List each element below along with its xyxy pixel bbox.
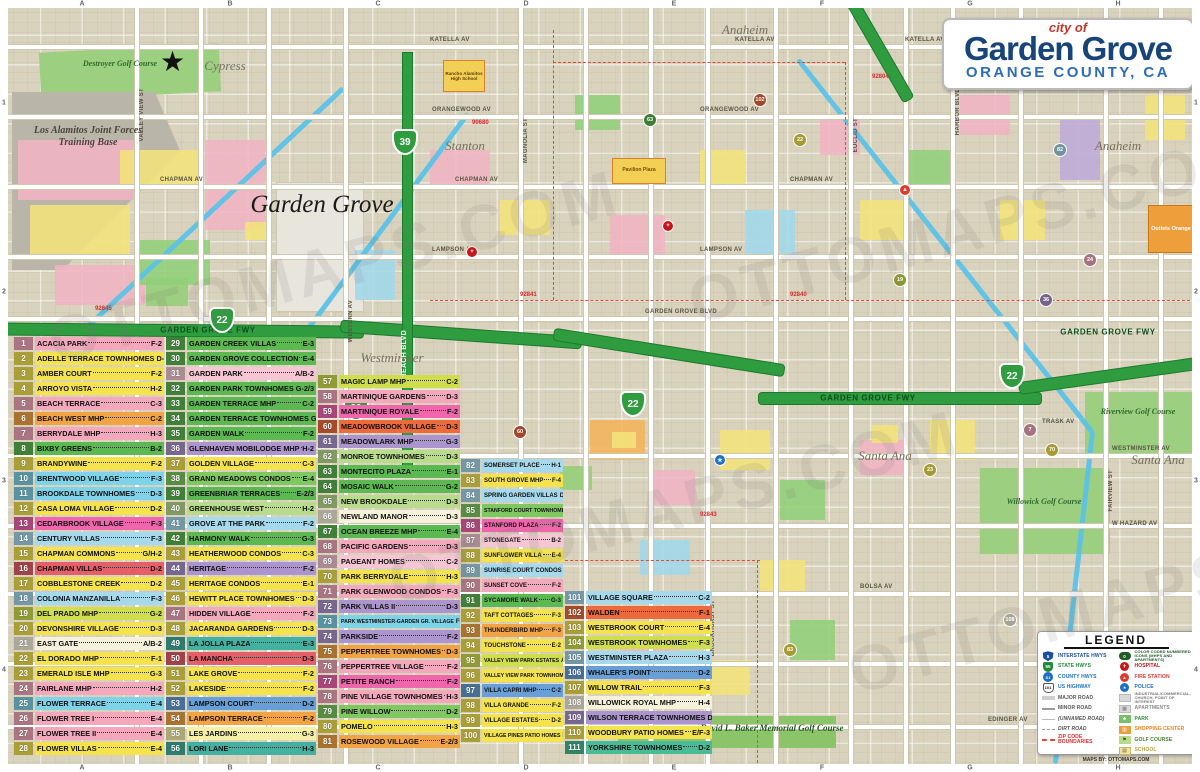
listing-name: PETITE RANCH (341, 677, 395, 686)
listing-name: GARDEN PARK TOWNHOMES (189, 384, 294, 393)
listing-row: 33GARDEN TERRACE MHPC-2 (166, 397, 316, 410)
grid-letter: A (79, 765, 84, 772)
listing-number: 86 (461, 519, 480, 532)
legend-item: 101US HIGHWAY (1041, 683, 1115, 694)
listing-row: 101VILLAGE SQUAREC-2 (565, 591, 712, 604)
listing-name: WESTMINSTER PLAZA (588, 653, 668, 662)
route-number: 22 (627, 399, 638, 410)
listing-row: 5BEACH TERRACEC-3 (14, 397, 164, 410)
grid-number: 1 (1194, 99, 1198, 106)
listing-number: 72 (318, 600, 337, 613)
listing-name: VALLEY VIEW PARK TOWNHOMES (484, 673, 563, 679)
listing-number: 31 (166, 367, 185, 380)
listing-name-bar: VILLAGE SQUAREC-2 (586, 591, 712, 604)
listing-number: 43 (166, 547, 185, 560)
listing-leader-dots (415, 440, 445, 441)
legend-item-label: MINOR ROAD (1058, 706, 1092, 711)
listing-name: VILLAGE SQUARE (588, 593, 653, 602)
listing-grid-ref: F-4 (552, 478, 561, 484)
street-label: WESTMINSTER AV (1112, 446, 1170, 452)
legend-item-label: GOLF COURSE (1135, 738, 1173, 743)
listing-name-bar: TOUCHSTONEE-2 (482, 639, 563, 652)
listing-leader-dots (652, 671, 697, 672)
listing-row: 27FLOWER TREE IIE-4 (14, 727, 164, 740)
listing-name-bar: ROSEWOOD VILLAGEE-2/3 (339, 735, 460, 748)
police-icon: ★ (715, 455, 725, 465)
listing-row: 91SYCAMORE WALKG-3 (461, 594, 563, 607)
industrial-swatch (1118, 694, 1132, 702)
us-shield: 101 (1041, 683, 1055, 693)
listing-leader-dots (683, 746, 697, 747)
listing-name: SOMERSET PLACE (484, 463, 540, 469)
listing-name: GARDEN WALK (189, 429, 244, 438)
legend-item-label: POLICE (1135, 685, 1154, 690)
listing-number: 20 (14, 622, 33, 635)
street-label: CHAPMAN AV (790, 177, 833, 183)
listing-name-bar: ADELLE TERRACE TOWNHOMESD-2 (35, 352, 164, 365)
listing-row: 77PETITE RANCHF-2 (318, 675, 460, 688)
listing-leader-dots (539, 719, 550, 720)
zip-boundary (1042, 739, 1055, 741)
grid-letter: A (79, 1, 84, 8)
listing-number: 67 (318, 525, 337, 538)
listing-name-bar: STONEGATEB-2 (482, 534, 563, 547)
listing-leader-dots (643, 686, 698, 687)
zip-boundary-line (553, 30, 554, 300)
listing-number: 53 (166, 697, 185, 710)
legend-title: LEGEND (1064, 634, 1169, 649)
listing-number: 109 (565, 711, 584, 724)
listing-leader-dots (544, 629, 551, 630)
listing-name-bar: PETITE RANCHF-2 (339, 675, 460, 688)
listing-name-bar: BEACH TERRACEC-3 (35, 397, 164, 410)
listing-leader-dots (79, 642, 142, 643)
listing-grid-ref: B-2 (551, 538, 561, 544)
listing-name: PEPPERTREE VILLAGE (341, 662, 424, 671)
listing-grid-ref: D-3 (707, 713, 712, 722)
listing-leader-dots (541, 464, 551, 465)
listing-name-bar: VILLAGE ESTATESD-2 (482, 714, 563, 727)
listing-name: WESTBROOK TOWNHOMES (588, 638, 687, 647)
listing-row: 20DEVONSHIRE VILLAGED-3 (14, 622, 164, 635)
listing-grid-ref: D-3 (560, 493, 563, 499)
zip-boundary-line (845, 62, 846, 300)
poi-outlet: Outlets Orange (1148, 205, 1194, 253)
listing-grid-ref: D-3 (446, 452, 458, 461)
listing-row: 108WILLOWICK ROYAL MHPH-4 (565, 696, 712, 709)
grid-letter: H (1115, 765, 1120, 772)
listing-leader-dots (396, 605, 445, 606)
listing-name-bar: LES JARDINSG-3 (187, 727, 316, 740)
listing-number: 64 (318, 480, 337, 493)
listing-row: 57MAGIC LAMP MHPC-2 (318, 375, 460, 388)
grid-number: 3 (2, 477, 6, 484)
listing-leader-dots (120, 477, 150, 478)
listing-number: 17 (14, 577, 33, 590)
legend-item: ▤SCHOOL (1118, 746, 1192, 757)
listing-name: SUNSET COVE (484, 583, 527, 589)
listing-name: PAGEANT HOMES (341, 557, 405, 566)
listing-name-bar: COLONIA MANZANILLAF-3 (35, 592, 164, 605)
street-label: KATELLA AV (430, 37, 470, 43)
listing-grid-ref: H-3 (698, 653, 710, 662)
grid-number: 2 (2, 288, 6, 295)
listing-grid-ref: G-2 (150, 609, 162, 618)
place-label-westminster: Westminster (360, 350, 423, 366)
listing-grid-ref: D-3 (446, 512, 458, 521)
listing-row: 61MEADOWLARK MHPG-3 (318, 435, 460, 448)
listing-row: 83SOUTH GROVE MHPF-4 (461, 474, 563, 487)
listing-grid-ref: F-2 (303, 684, 314, 693)
listing-row: 24FAIRLANE MHPH-2 (14, 682, 164, 695)
listing-number: 11 (14, 487, 33, 500)
street-label: GARDEN GROVE BLVD (645, 309, 717, 315)
listing-name-bar: WHALER'S POINTD-2 (586, 666, 712, 679)
listing-name: PINE VILLAGE TOWNHOMES (341, 692, 443, 701)
listing-name-bar: EL DORADO MHPF-1 (35, 652, 164, 665)
listing-name-bar: SOUTH GROVE MHPF-4 (482, 474, 563, 487)
listing-name: HIDDEN VILLAGE (189, 609, 251, 618)
legend-item: 55STATE HWYS (1041, 662, 1115, 673)
listing-row: 41GROVE AT THE PARKF-2 (166, 517, 316, 530)
golf-swatch: ⚑ (1118, 736, 1132, 744)
listing-name: GLENHAVEN MOBILODGE MHP (189, 444, 300, 453)
listing-row: 68PACIFIC GARDENSD-3 (318, 540, 460, 553)
listing-name: CENTURY VILLAS (37, 534, 100, 543)
listing-leader-dots (101, 402, 149, 403)
listing-row: 26FLOWER TREE IE-4 (14, 712, 164, 725)
us-shield: 101 (1043, 683, 1054, 693)
listing-leader-dots (539, 599, 550, 600)
listing-name: FLOWER VILLAS (37, 744, 97, 753)
listing-grid-ref: A/B-2 (295, 369, 314, 378)
listing-name: THUNDERBIRD MHP (484, 628, 543, 634)
interstate-shield: 5 (1043, 651, 1054, 661)
listing-name-bar: PARK GLENWOOD CONDOSF-3 (339, 585, 460, 598)
place-label-anaheim: Anaheim (722, 22, 768, 38)
map-badge-36: 36 (1040, 294, 1052, 306)
listing-grid-ref: C-2 (698, 593, 710, 602)
listing-name-bar: MEADOWLARK MHPG-3 (339, 435, 460, 448)
listing-grid-ref: C-2 (446, 377, 458, 386)
map-badge-19: 19 (894, 274, 906, 286)
listing-name: ROSEWOOD VILLAGE (341, 737, 419, 746)
listing-name-bar: OCEAN BREEZE MHPE-4 (339, 525, 460, 538)
legend-item-label: ZIP CODE BOUNDARIES (1058, 735, 1115, 746)
listing-name: VILLAGE PINES PATIO HOMES (484, 733, 560, 739)
listing-leader-dots (427, 395, 446, 396)
listing-grid-ref: G-3 (302, 729, 314, 738)
listing-number: 10 (14, 472, 33, 485)
listing-name-bar: LAMPSON TERRACEF-2 (187, 712, 316, 725)
listing-name: CHAPMAN VILLAS (37, 564, 102, 573)
listing-leader-dots (88, 462, 150, 463)
listing-name-bar: WILLOW TRAILF-3 (586, 681, 712, 694)
listing-leader-dots (121, 582, 149, 583)
listing-name: HEWITT PLACE TOWNHOMES (189, 594, 295, 603)
listing-number: 55 (166, 727, 185, 740)
grid-letter: D (523, 765, 528, 772)
listing-number: 65 (318, 495, 337, 508)
listing-name: VALLEY VIEW PARK ESTATES (484, 658, 559, 664)
grid-letter: E (672, 765, 677, 772)
listing-leader-dots (442, 590, 446, 591)
listing-grid-ref: H-3 (302, 744, 314, 753)
listing-number: 97 (461, 684, 480, 697)
listing-name: MEADOWLARK MHP (341, 437, 414, 446)
residential-patch (860, 200, 905, 240)
listing-number: 92 (461, 609, 480, 622)
listing-number: 30 (166, 352, 185, 365)
listing-grid-ref: F-1 (151, 654, 162, 663)
listing-row: 96VALLEY VIEW PARK TOWNHOMESA-2 (461, 669, 563, 682)
listing-number: 2 (14, 352, 33, 365)
listing-grid-ref: D-3 (446, 497, 458, 506)
listing-leader-dots (93, 447, 149, 448)
listing-row: 16CHAPMAN VILLASD-2 (14, 562, 164, 575)
legend-item: MAJOR ROAD (1041, 693, 1115, 704)
street-label: MAGNOLIA ST (523, 118, 529, 163)
listing-name-bar: LAKESIDEF-2 (187, 682, 316, 695)
listing-name-bar: AMBER COURTF-2 (35, 367, 164, 380)
listing-row: 2ADELLE TERRACE TOWNHOMESD-2 (14, 352, 164, 365)
poi-school: Rancho Alamitos High School (443, 60, 485, 92)
zip-code-label: 90680 (472, 120, 489, 126)
listing-leader-dots (227, 567, 302, 568)
listing-name: LAKESIDE (189, 684, 226, 693)
listing-name-bar: LA JOLLA PLAZAE-3 (187, 637, 316, 650)
major-road (773, 0, 779, 772)
listing-grid-ref: E-4 (303, 354, 314, 363)
listing-leader-dots (101, 432, 149, 433)
grid-number: 3 (1194, 477, 1198, 484)
major-road (1041, 696, 1055, 700)
listing-number: 108 (565, 696, 584, 709)
listing-row: 72PARK VILLAS IID-3 (318, 600, 460, 613)
legend-item: +HOSPITAL (1118, 662, 1192, 673)
listing-name: YORKSHIRE TOWNHOMES (588, 743, 682, 752)
listing-grid-ref: D-3 (446, 422, 458, 431)
listing-grid-ref: F-2 (303, 609, 314, 618)
listing-grid-ref: D-3 (446, 647, 458, 656)
listing-leader-dots (437, 425, 445, 426)
listing-leader-dots (543, 554, 551, 555)
listing-grid-ref: D-2 (150, 504, 162, 513)
listing-row: 92TAFT COTTAGESF-3 (461, 609, 563, 622)
residential-patch (650, 470, 695, 505)
listing-row: 94TOUCHSTONEE-2 (461, 639, 563, 652)
listing-leader-dots (409, 515, 445, 516)
listing-leader-dots (281, 492, 295, 493)
hospital-icon: + (1120, 662, 1129, 671)
freeway-5 (827, 0, 914, 104)
dirt-road (1042, 729, 1055, 730)
grid-letter: C (375, 765, 380, 772)
listing-leader-dots (98, 747, 150, 748)
listing-row: 56LORI LANEH-3 (166, 742, 316, 755)
legend-item-label: PARK (1135, 717, 1149, 722)
listing-name-bar: COBBLESTONE CREEKD-2 (35, 577, 164, 590)
listing-row: 63MONTECITO PLAZAE-1 (318, 465, 460, 478)
listing-grid-ref: G-2 (446, 482, 458, 491)
legend-left-column: 5INTERSTATE HWYS55STATE HWYSS1COUNTY HWY… (1041, 651, 1115, 756)
listing-grid-ref: D-3 (150, 624, 162, 633)
listing-number: 101 (565, 591, 584, 604)
listing-name: VILLA CAPRI MHP (484, 688, 536, 694)
listing-row: 51LAKE GROVEF-2 (166, 667, 316, 680)
residential-patch (790, 620, 835, 660)
listing-name-bar: GARDEN PARKA/B-2 (187, 367, 316, 380)
listing-name: FLOWER TREE I (37, 714, 94, 723)
listing-grid-ref: F-2 (552, 703, 561, 709)
grid-letter: G (967, 1, 972, 8)
residential-patch (500, 200, 550, 235)
legend-item-label: (UNNAMED ROAD) (1058, 717, 1104, 722)
listing-leader-dots (101, 537, 150, 538)
street-label: WESTERN AV (348, 300, 354, 342)
listing-name-bar: GOLDEN VILLAGEC-3 (187, 457, 316, 470)
numbered-icon: 0 (1118, 652, 1132, 660)
listing-name: OCEAN BREEZE MHP (341, 527, 417, 536)
listing-grid-ref: D-3 (302, 594, 314, 603)
listing-grid-ref: F-3 (699, 683, 710, 692)
grid-letter: B (227, 1, 232, 8)
listing-name-bar: LA MANCHAD-3 (187, 652, 316, 665)
listing-number: 56 (166, 742, 185, 755)
listing-name: TAFT COTTAGES (484, 613, 533, 619)
legend-item: S1COUNTY HWYS (1041, 672, 1115, 683)
listing-leader-dots (391, 710, 445, 711)
listing-row: 35GARDEN WALKF-2 (166, 427, 316, 440)
listing-leader-dots (116, 552, 141, 553)
listing-name-bar: VALLEY VIEW PARK TOWNHOMESA-2 (482, 669, 563, 682)
listing-name-bar: HERITAGE CONDOSE-1 (187, 577, 316, 590)
listing-name-bar: GARDEN PARK TOWNHOMESG-2/3 (187, 382, 316, 395)
listing-number: 88 (461, 549, 480, 562)
listing-leader-dots (88, 342, 150, 343)
listing-number: 80 (318, 720, 337, 733)
listing-name-bar: STANFORD COURT TOWNHOMESF-2 (482, 504, 563, 517)
listing-grid-ref: D-3 (150, 489, 162, 498)
listing-leader-dots (407, 380, 445, 381)
listing-name: MONTECITO PLAZA (341, 467, 411, 476)
listing-name-bar: FAIRLANE MHPH-2 (35, 682, 164, 695)
listing-name: AMBER COURT (37, 369, 92, 378)
listing-number: 18 (14, 592, 33, 605)
listing-leader-dots (103, 567, 149, 568)
listing-row: 9BRANDYWINEF-2 (14, 457, 164, 470)
listing-grid-ref: C-2 (551, 688, 561, 694)
listing-leader-dots (252, 612, 302, 613)
listing-number: 37 (166, 457, 185, 470)
listing-leader-dots (530, 704, 551, 705)
listing-number: 34 (166, 412, 185, 425)
listing-row: 3AMBER COURTF-2 (14, 367, 164, 380)
listing-leader-dots (408, 500, 445, 501)
legend-item: ▲FIRE STATION (1118, 672, 1192, 683)
listing-number: 47 (166, 607, 185, 620)
state-shield: 55 (1041, 662, 1055, 672)
listing-grid-ref: F-3 (151, 519, 162, 528)
listing-number: 59 (318, 405, 337, 418)
listing-name: COLONIA MANZANILLA (37, 594, 120, 603)
listing-row: 15CHAPMAN COMMONSG/H-2 (14, 547, 164, 560)
legend-box: LEGEND 5INTERSTATE HWYS55STATE HWYSS1COU… (1037, 631, 1195, 755)
listing-name-bar: PARK WESTMINSTER-GARDEN GR. VILLAGEF-3 (339, 615, 460, 628)
street-label: EDINGER AV (988, 717, 1028, 723)
listing-name-bar: ARROYO VISTAH-2 (35, 382, 164, 395)
listing-row: 98VILLA GRANDEF-2 (461, 699, 563, 712)
listing-grid-ref: F-2 (303, 519, 314, 528)
legend-item: ▦APARTMENTS (1118, 704, 1192, 715)
listing-name-bar: POMELOH-3 (339, 720, 460, 733)
residential-patch (872, 425, 898, 443)
listing-name: VILLA GRANDE (484, 703, 529, 709)
listing-name: SPRING GARDEN VILLAS (484, 493, 558, 499)
listing-leader-dots (292, 477, 302, 478)
frame-top (0, 0, 1200, 8)
legend-item: 5INTERSTATE HWYS (1041, 651, 1115, 662)
listing-leader-dots (654, 596, 697, 597)
listing-grid-ref: E-4 (447, 527, 458, 536)
map-badge-63: 63 (644, 114, 656, 126)
residential-patch (575, 95, 620, 130)
listing-grid-ref: H-1 (551, 463, 561, 469)
frame-left (0, 0, 8, 772)
street-label: ORANGEWOOD AV (700, 107, 759, 113)
listing-name: PARK BERRYDALE (341, 572, 408, 581)
listing-name: WALDEN (588, 608, 620, 617)
map-badge-83: 83 (784, 644, 796, 656)
listing-leader-dots (255, 462, 301, 463)
listing-name: HERITAGE CONDOS (189, 579, 260, 588)
listing-grid-ref: H-3 (446, 572, 458, 581)
listing-name-bar: HERITAGEF-2 (187, 562, 316, 575)
listing-row: 74PARKSIDEF-2 (318, 630, 460, 643)
listing-name: GARDEN CREEK VILLAS (189, 339, 276, 348)
listing-name: LA MANCHA (189, 654, 233, 663)
listing-name-bar: SPRING GARDEN VILLASD-3 (482, 489, 563, 502)
listing-row: 22EL DORADO MHPF-1 (14, 652, 164, 665)
grid-letter: F (820, 1, 824, 8)
listing-row: 81ROSEWOOD VILLAGEE-2/3 (318, 735, 460, 748)
listing-name: STONEGATE (484, 538, 521, 544)
listing-grid-ref: B-2 (150, 444, 162, 453)
listing-name-bar: WESTBROOK COURTE-4 (586, 621, 712, 634)
listing-name-bar: SUNFLOWER VILLAE-4 (482, 549, 563, 562)
listing-row: 102WALDENF-1 (565, 606, 712, 619)
listing-number: 79 (318, 705, 337, 718)
listing-leader-dots (251, 537, 301, 538)
legend-item: INDUSTRIAL/COMMERCIAL, CHURCH, POINT OF … (1118, 693, 1192, 704)
street-label: CHAPMAN AV (160, 177, 203, 183)
listing-name-bar: PARK BERRYDALEH-3 (339, 570, 460, 583)
listing-grid-ref: G-3 (311, 414, 316, 423)
street-label: KATELLA AV (905, 37, 945, 43)
listing-row: 48JACARANDA GARDENSD-3 (166, 622, 316, 635)
listing-name-bar: SUNRISE COURT CONDOSD-3 (482, 564, 563, 577)
listing-name: FAIRLANE MHP (37, 684, 92, 693)
grid-number: 2 (1194, 288, 1198, 295)
listing-name-bar: FLOWER TERRACEE-4 (35, 697, 164, 710)
listing-name-bar: SOMERSET PLACEH-1 (482, 459, 563, 472)
listing-name-bar: VALLEY VIEW PARK ESTATESA-2/3 (482, 654, 563, 667)
listing-leader-dots (406, 560, 445, 561)
listing-number: 48 (166, 622, 185, 635)
listing-row: 8BIXBY GREENSB-2 (14, 442, 164, 455)
hospital-icon: + (1118, 662, 1132, 671)
listing-grid-ref: A-2/3 (561, 658, 563, 664)
